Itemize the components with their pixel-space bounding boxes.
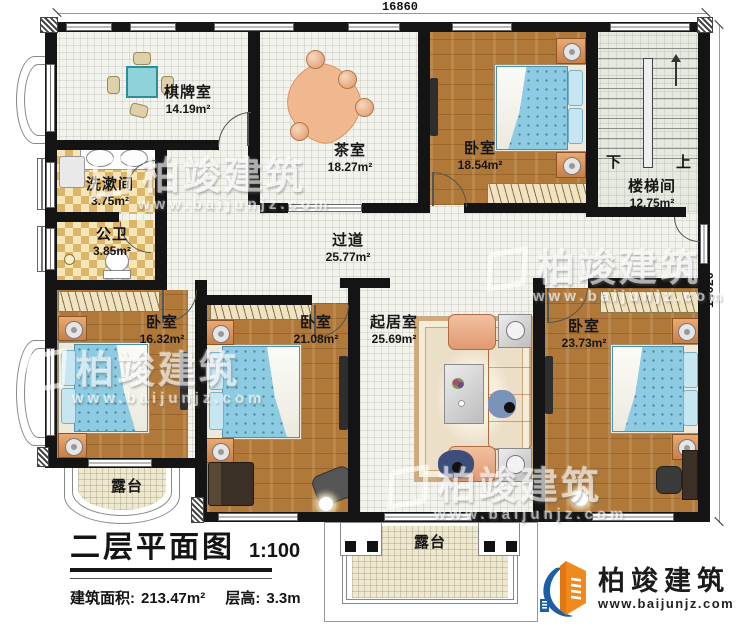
floor-plan-canvas: 16860 14620 露台 露台 <box>0 0 750 632</box>
stair-rail <box>643 58 653 168</box>
company-logo-icon <box>538 558 590 620</box>
tv <box>339 356 348 430</box>
room-area: 25.69m² <box>344 332 444 346</box>
teacup-icon <box>458 400 465 407</box>
stool <box>355 98 374 117</box>
area-value: 213.47m² <box>141 590 205 607</box>
stair-up-label: 上 <box>672 154 696 172</box>
window <box>348 23 400 31</box>
room-name: 露台 <box>386 534 474 552</box>
title-underline <box>70 568 272 579</box>
lamp-icon <box>65 321 83 339</box>
desk <box>208 462 254 506</box>
lamp-icon <box>506 321 525 340</box>
room-area: 12.75m² <box>598 196 706 210</box>
pillow <box>683 352 698 388</box>
wall <box>340 278 390 288</box>
room-label-living: 起居室 25.69m² <box>344 314 444 346</box>
company-name: 柏竣建筑 <box>598 567 734 595</box>
room-label-terrace-s: 露台 <box>386 534 474 552</box>
height-label: 层高: <box>225 590 260 607</box>
room-name: 卧室 <box>536 318 632 336</box>
stair-arrow-up-icon <box>675 62 677 86</box>
pillow <box>683 390 698 426</box>
wall <box>57 212 119 222</box>
watermark: 柏竣建筑 www.baijunjz.com <box>487 250 726 304</box>
stool <box>290 122 309 141</box>
room-label-terrace-sw: 露台 <box>87 478 167 496</box>
window <box>88 459 152 467</box>
toilet-tank <box>103 270 131 279</box>
armchair <box>448 314 496 350</box>
lamp-icon <box>212 325 230 343</box>
nightstand <box>58 316 87 341</box>
watermark-logo-icon <box>387 464 429 510</box>
wall <box>464 203 590 213</box>
nightstand <box>672 318 700 344</box>
room-name: 过道 <box>300 232 396 250</box>
tv <box>545 356 553 414</box>
terrace-column <box>367 541 378 552</box>
door-leaf <box>247 112 249 146</box>
window <box>218 513 298 521</box>
stair-arrow-head-icon <box>671 54 681 62</box>
window <box>46 162 55 208</box>
plan-title: 二层平面图 <box>70 522 235 566</box>
lamp-icon <box>563 157 581 175</box>
wall <box>586 32 598 217</box>
company-brand: 柏竣建筑 www.baijunjz.com <box>538 558 734 620</box>
title-block: 二层平面图 1:100 建筑面积:213.47m² 层高:3.3m <box>70 522 307 608</box>
window <box>130 23 176 31</box>
room-label-bedroom-se: 卧室 23.73m² <box>536 318 632 350</box>
floor-lamp-icon <box>318 496 334 512</box>
window <box>66 23 112 31</box>
room-label-stairwell: 楼梯间 12.75m² <box>598 178 706 210</box>
terrace-column <box>345 541 356 552</box>
watermark-logo-icon <box>91 154 133 200</box>
pillow <box>568 70 583 106</box>
nightstand <box>205 438 234 463</box>
lamp-icon <box>678 323 696 341</box>
room-area: 18.54m² <box>430 158 530 172</box>
room-label-chess: 棋牌室 14.19m² <box>140 84 236 116</box>
tv <box>430 78 438 136</box>
person-head <box>504 402 515 413</box>
wall <box>362 203 418 213</box>
window <box>610 23 690 31</box>
room-label-corridor: 过道 25.77m² <box>300 232 396 264</box>
desk-chair <box>656 466 682 494</box>
nightstand <box>58 433 87 458</box>
mattress <box>496 66 568 150</box>
room-name: 公卫 <box>74 226 150 244</box>
room-area: 25.77m² <box>300 250 396 264</box>
room-name: 露台 <box>87 478 167 496</box>
nightstand <box>556 152 586 178</box>
window <box>214 23 294 31</box>
room-area: 23.73m² <box>536 336 632 350</box>
wall <box>207 295 312 305</box>
wardrobe <box>58 291 160 312</box>
lamp-icon <box>212 443 230 461</box>
corner-column <box>191 497 204 523</box>
stool <box>306 50 325 69</box>
room-name: 卧室 <box>114 314 210 332</box>
mattress <box>612 346 684 432</box>
company-website: www.baijunjz.com <box>598 596 734 611</box>
blanket <box>497 67 567 149</box>
window <box>46 64 55 132</box>
area-label: 建筑面积: <box>70 590 135 607</box>
nightstand <box>556 38 586 64</box>
lamp-icon <box>65 438 83 456</box>
pillow <box>568 108 583 144</box>
flower-vase-icon <box>452 378 464 389</box>
watermark: 柏竣建筑 www.baijunjz.com <box>26 352 265 406</box>
dimension-top-label: 16860 <box>360 0 440 14</box>
desk <box>682 450 698 500</box>
room-name: 棋牌室 <box>140 84 236 102</box>
room-name: 起居室 <box>344 314 444 332</box>
watermark: 柏竣建筑 www.baijunjz.com <box>92 158 331 212</box>
stool <box>338 70 357 89</box>
lamp-icon <box>563 43 581 61</box>
room-area: 16.32m² <box>114 332 210 346</box>
height-value: 3.3m <box>266 590 300 607</box>
door-leaf <box>432 172 434 206</box>
corner-column <box>40 17 58 33</box>
blanket <box>613 347 683 431</box>
room-label-toilet: 公卫 3.85m² <box>74 226 150 258</box>
watermark-logo-icon <box>25 348 67 394</box>
plan-scale: 1:100 <box>249 540 300 563</box>
room-label-bedroom-sw: 卧室 16.32m² <box>114 314 210 346</box>
wall <box>45 280 162 290</box>
room-area: 14.19m² <box>140 102 236 116</box>
coffee-table <box>444 364 484 424</box>
wall <box>57 140 219 150</box>
terrace-column <box>484 541 495 552</box>
corner-column <box>37 447 49 467</box>
room-name: 楼梯间 <box>598 178 706 196</box>
terrace-column <box>506 541 517 552</box>
watermark-logo-icon <box>486 246 528 292</box>
room-label-bedroom-ne: 卧室 18.54m² <box>430 140 530 172</box>
corner-column <box>697 17 713 33</box>
wall <box>418 32 430 213</box>
room-name: 卧室 <box>430 140 530 158</box>
chair <box>107 76 120 94</box>
chair <box>133 52 151 65</box>
window <box>46 228 55 270</box>
window <box>452 23 512 31</box>
stair-down-label: 下 <box>602 154 626 172</box>
watermark: 柏竣建筑 www.baijunjz.com <box>388 468 627 522</box>
room-area: 3.85m² <box>74 244 150 258</box>
